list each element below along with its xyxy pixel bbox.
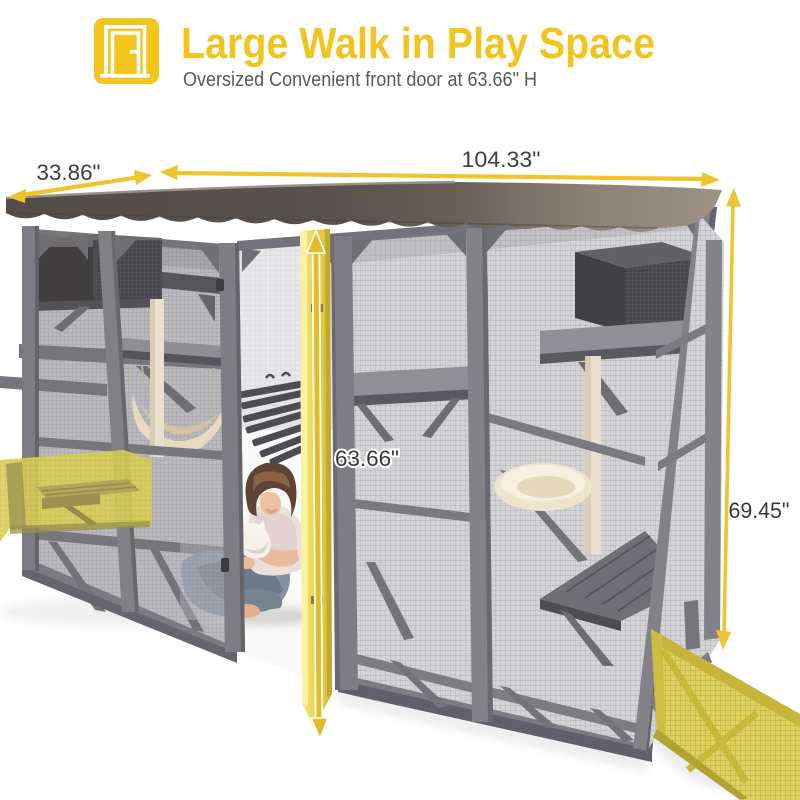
- svg-text:Oversized Convenient front doo: Oversized Convenient front door at 63.66…: [183, 68, 537, 91]
- svg-text:33.86": 33.86": [37, 160, 101, 185]
- svg-text:69.45": 69.45": [729, 498, 790, 523]
- svg-text:Large Walk in Play Space: Large Walk in Play Space: [181, 19, 655, 68]
- svg-text:63.66": 63.66": [335, 446, 399, 471]
- svg-text:104.33": 104.33": [462, 147, 541, 172]
